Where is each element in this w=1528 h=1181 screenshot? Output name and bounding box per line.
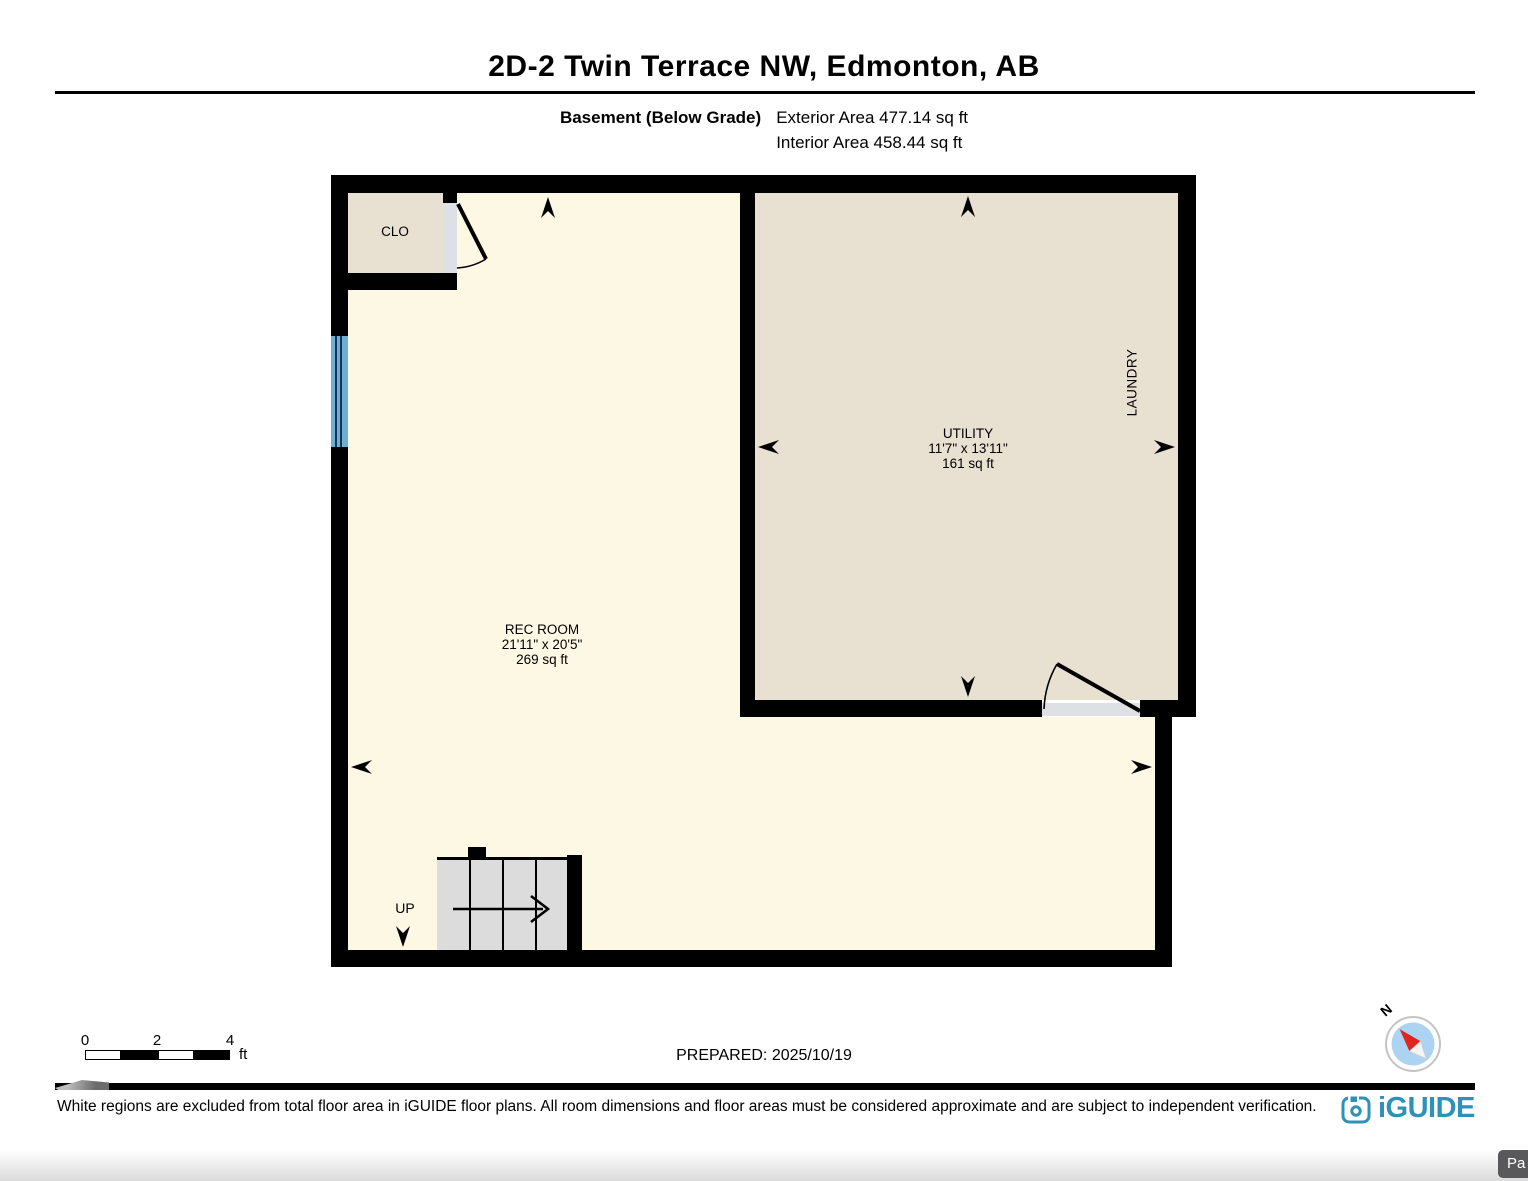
window-pane-line (340, 336, 342, 447)
utility-dimensions: 11'7" x 13'11" (888, 441, 1048, 456)
page-tooltip-button[interactable]: Pa (1498, 1150, 1528, 1178)
floor-summary: Basement (Below Grade) Exterior Area 477… (0, 105, 1528, 155)
closet-label: CLO (345, 224, 445, 239)
title-divider (55, 91, 1475, 94)
rec-room-floor-extension (740, 717, 1155, 950)
bottom-edge-shadow (0, 1150, 1528, 1181)
left-wall-upper (331, 175, 348, 336)
stair-tread-line (502, 860, 504, 950)
stairs-up-label: UP (385, 901, 425, 916)
stairs (437, 857, 567, 950)
rec-room-floor (348, 193, 740, 950)
utility-bottom-wall-left (740, 700, 1042, 717)
floor-label: Basement (Below Grade) (560, 105, 761, 155)
window (331, 336, 348, 447)
disclaimer-text: White regions are excluded from total fl… (57, 1098, 1317, 1116)
top-wall (331, 175, 1196, 193)
bottom-wall (331, 950, 1172, 967)
rec-right-wall (1155, 700, 1172, 950)
rec-room-area: 269 sq ft (462, 652, 622, 667)
stair-tread-line (469, 860, 471, 950)
utility-area: 161 sq ft (888, 456, 1048, 471)
floor-plan-page: 2D-2 Twin Terrace NW, Edmonton, AB Basem… (0, 0, 1528, 1181)
footer-divider (55, 1083, 1475, 1090)
window-pane-line (335, 336, 337, 447)
utility-label: UTILITY 11'7" x 13'11" 161 sq ft (888, 426, 1048, 471)
area-summary: Exterior Area 477.14 sq ft Interior Area… (776, 105, 968, 155)
prepared-date: PREPARED: 2025/10/19 (0, 1047, 1528, 1065)
iguide-wordmark: iGUIDE (1378, 1092, 1475, 1125)
page-title: 2D-2 Twin Terrace NW, Edmonton, AB (0, 50, 1528, 84)
rec-room-dimensions: 21'11" x 20'5" (462, 637, 622, 652)
exterior-area: Exterior Area 477.14 sq ft (776, 105, 968, 130)
right-outer-wall (1178, 175, 1196, 717)
compass-north-label: N (1377, 1001, 1395, 1020)
iguide-logo: iGUIDE (1340, 1092, 1475, 1125)
closet-bottom-wall (331, 273, 457, 290)
rec-room-label: REC ROOM 21'11" x 20'5" 269 sq ft (462, 622, 622, 667)
rec-utility-divider-wall (740, 193, 755, 717)
iguide-camera-icon (1340, 1093, 1372, 1125)
interior-area: Interior Area 458.44 sq ft (776, 130, 968, 155)
stair-tread-line (535, 860, 537, 950)
utility-door-threshold (1042, 703, 1140, 716)
closet-door-threshold (443, 203, 457, 273)
stairs-right-wall (567, 855, 582, 950)
left-wall-lower (331, 447, 348, 967)
closet-door-stub (443, 193, 457, 203)
utility-name: UTILITY (888, 426, 1048, 441)
rec-room-name: REC ROOM (462, 622, 622, 637)
laundry-label: LAUNDRY (1125, 338, 1140, 428)
